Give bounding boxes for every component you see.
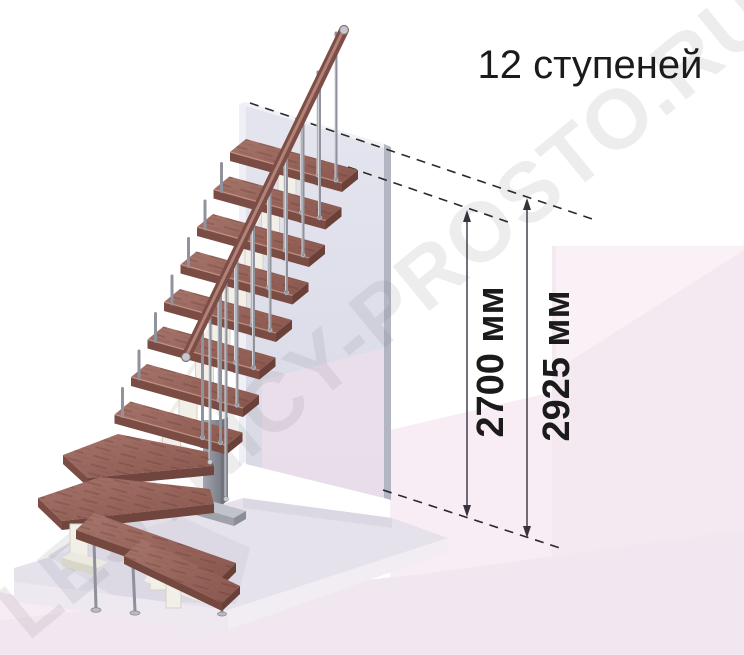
dimension-label-2700: 2700 мм bbox=[470, 286, 512, 437]
diagram-canvas: LESTNICY-PROSTO.RU bbox=[0, 0, 744, 655]
handrail-top-cap bbox=[340, 26, 348, 34]
handrail-end-cap bbox=[182, 353, 190, 361]
figure-title: 12 ступеней bbox=[478, 43, 703, 87]
dimension-label-2925: 2925 мм bbox=[536, 290, 578, 441]
staircase-diagram-image: LESTNICY-PROSTO.RU bbox=[0, 0, 744, 655]
